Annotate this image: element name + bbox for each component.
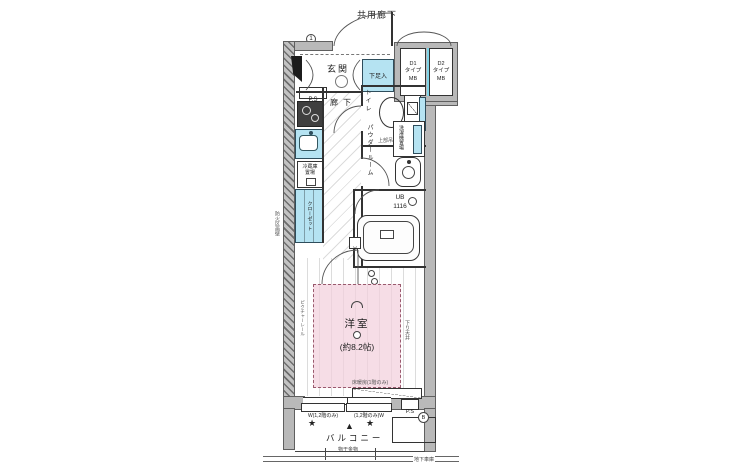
pipe-space-bottom-label: P.S	[406, 409, 414, 415]
star-marker: ★	[308, 418, 316, 429]
laundry-space: 洗濯機置場	[393, 121, 425, 157]
bathtub-handle	[380, 230, 394, 239]
genkan-cabinet-arc	[306, 60, 313, 90]
shoe-cabinet: 下足入	[362, 59, 394, 92]
stove-burner	[302, 106, 311, 115]
genkan-label: 玄関	[327, 62, 349, 75]
evacuation-hatch	[392, 417, 436, 443]
vent-symbol	[368, 270, 375, 277]
wall-line	[353, 189, 426, 191]
laundry-label: 洗濯機置場	[398, 125, 403, 150]
wall-line	[353, 189, 355, 268]
room-size: (約8.2帖)	[313, 341, 401, 353]
bathtub	[357, 215, 420, 261]
wall-line	[353, 266, 426, 268]
pipe-space-bottom: P.S	[401, 399, 419, 410]
window-note-left: W(1,2階のみ)	[301, 403, 345, 412]
balcony-label: バルコニー	[326, 432, 383, 444]
room-name: 洋室	[313, 316, 401, 331]
picture-rail-note: ピクチャーレール	[300, 300, 305, 336]
hatch-marker: B	[418, 412, 429, 423]
mb-d1: D1 タイプ MB	[400, 48, 426, 96]
floor-heating-note: 床暖房(1階のみ)	[352, 379, 388, 386]
wall-line	[322, 88, 324, 243]
wall-line	[361, 85, 426, 87]
floor-plan: 共用廊下 1 D1 タイプ MB D2 タイプ MB 玄関 下足入 P.S 冷蔵…	[0, 0, 730, 470]
fridge-symbol	[306, 178, 316, 186]
y-marker-label: Y	[353, 247, 357, 253]
genkan-dashed-line	[300, 54, 390, 55]
shoe-cabinet-label: 下足入	[369, 71, 387, 80]
ceiling-light-symbol	[351, 301, 363, 308]
stove	[297, 101, 323, 127]
wall-line	[361, 85, 363, 106]
closet-label: クローゼット	[307, 201, 312, 231]
toilet-tank-lid	[407, 102, 418, 115]
closet-door-line	[304, 190, 305, 242]
mb-d2-line3: MB	[430, 76, 452, 83]
stove-burner	[311, 114, 319, 122]
fridge-label-line2: 置場	[298, 170, 322, 176]
triangle-marker: ▲	[345, 421, 354, 431]
hallway-label: 廊下	[330, 97, 356, 108]
fridge-space: 冷蔵庫 置場	[297, 161, 323, 188]
firewall-note: 防火区画壁	[274, 211, 279, 236]
room-marker-circle	[353, 331, 361, 339]
genkan-cabinet-arc	[353, 60, 360, 90]
mb-d2-line2: タイプ	[430, 68, 452, 75]
washbasin	[395, 157, 421, 187]
mb-d2: D2 タイプ MB	[429, 48, 453, 96]
faucet-icon	[407, 160, 411, 164]
closet-door-line	[313, 190, 314, 242]
closet: クローゼット	[295, 189, 323, 243]
mb-d1-line3: MB	[401, 76, 425, 83]
basement-note: 地下車庫	[413, 456, 435, 463]
wall-line	[296, 91, 362, 93]
balcony-rail	[295, 451, 425, 452]
vanity-unit	[413, 125, 422, 154]
powder-room-label: パウダールーム	[366, 124, 372, 177]
genkan-step-circle	[335, 75, 348, 88]
star-marker: ★	[366, 418, 374, 429]
washbasin-bowl	[402, 166, 415, 179]
faucet-icon	[309, 131, 313, 135]
mb-d1-line2: タイプ	[401, 68, 425, 75]
left-fire-wall	[283, 41, 295, 421]
bath-control	[408, 197, 417, 206]
toilet-label: トイレ	[364, 89, 370, 113]
window-note-right: (1,2階のみ)W	[346, 403, 392, 412]
sink-bowl	[299, 135, 318, 151]
right-wall	[424, 102, 436, 422]
entry-door-leaf	[391, 12, 393, 46]
balcony-left-wall	[283, 408, 295, 450]
lowered-ceiling-note: 下り天井	[404, 320, 409, 340]
y-marker: Y	[349, 237, 361, 249]
kitchen-sink	[295, 129, 323, 159]
